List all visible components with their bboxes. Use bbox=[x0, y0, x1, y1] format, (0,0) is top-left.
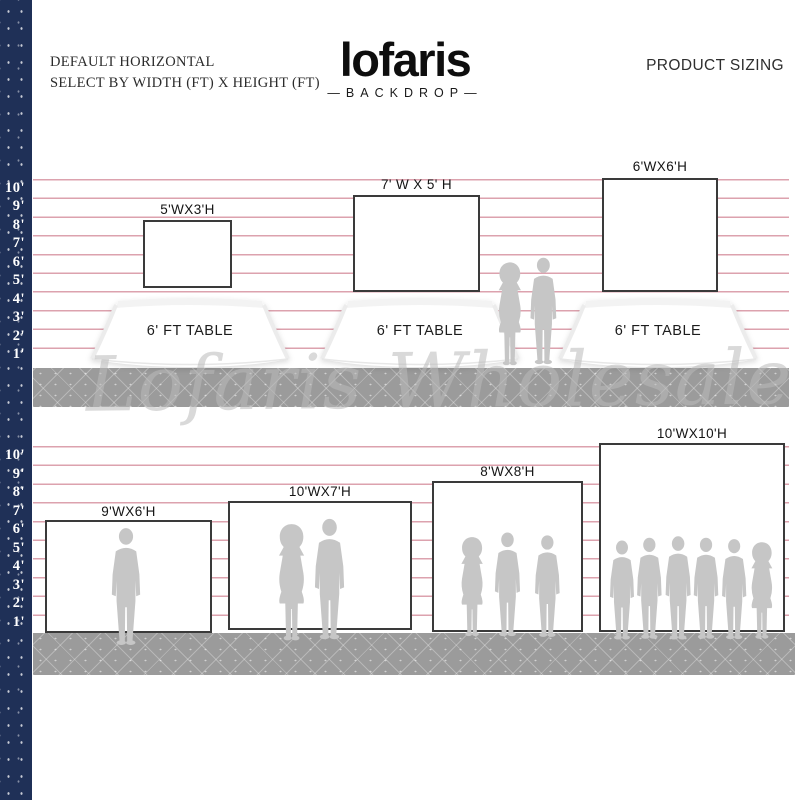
ruler-top-mark-6ft: 6' bbox=[0, 254, 25, 271]
banquet-table-1: 6' FT TABLE bbox=[90, 296, 290, 367]
left-ruler-strip bbox=[0, 0, 32, 800]
instruction-line2: SELECT BY WIDTH (FT) X HEIGHT (FT) bbox=[50, 73, 320, 94]
product-sizing-label: PRODUCT SIZING bbox=[646, 57, 784, 75]
brand-logo: lofaris —BACKDROP— bbox=[300, 36, 510, 100]
ruler-top-mark-3ft: 3' bbox=[0, 309, 25, 326]
backdrop-size-label-10x7: 10'WX7'H bbox=[228, 484, 412, 499]
ruler-bottom-mark-1ft: 1' bbox=[0, 614, 25, 631]
backdrop-panel-5x3 bbox=[143, 220, 232, 288]
ruler-bottom-mark-9ft: 9' bbox=[0, 466, 25, 483]
ruler-top-mark-4ft: 4' bbox=[0, 291, 25, 308]
ruler-bottom-mark-6ft: 6' bbox=[0, 521, 25, 538]
brand-tagline: —BACKDROP— bbox=[300, 86, 510, 100]
ruler-top-mark-9ft: 9' bbox=[0, 198, 25, 215]
man-silhouette-9x6 bbox=[101, 527, 151, 645]
couple-silhouette-10x7 bbox=[268, 514, 354, 642]
backdrop-size-label-5x3: 5'WX3'H bbox=[143, 202, 232, 217]
backdrop-size-label-8x8: 8'WX8'H bbox=[432, 464, 583, 479]
product-sizing-infographic: DEFAULT HORIZONTAL SELECT BY WIDTH (FT) … bbox=[0, 0, 800, 800]
ruler-top-mark-10ft: 10' bbox=[0, 180, 25, 197]
ruler-bottom-mark-8ft: 8' bbox=[0, 484, 25, 501]
sizing-instructions: DEFAULT HORIZONTAL SELECT BY WIDTH (FT) … bbox=[50, 52, 320, 94]
ruler-top-mark-5ft: 5' bbox=[0, 272, 25, 289]
table-label: 6' FT TABLE bbox=[90, 323, 290, 339]
banquet-table-3: 6' FT TABLE bbox=[558, 296, 758, 367]
backdrop-panel-6x6 bbox=[602, 178, 718, 292]
brand-name: lofaris bbox=[300, 36, 510, 83]
couple-silhouette-top bbox=[489, 253, 565, 367]
ruler-bottom-mark-5ft: 5' bbox=[0, 540, 25, 557]
backdrop-size-label-9x6: 9'WX6'H bbox=[45, 504, 212, 519]
ruler-top-mark-2ft: 2' bbox=[0, 328, 25, 345]
group-silhouette-10x10 bbox=[602, 524, 782, 650]
backdrop-size-label-6x6: 6'WX6'H bbox=[602, 159, 718, 174]
backdrop-size-label-7x5: 7' W X 5' H bbox=[353, 177, 480, 192]
ruler-top-mark-7ft: 7' bbox=[0, 235, 25, 252]
ruler-bottom-mark-4ft: 4' bbox=[0, 558, 25, 575]
ruler-bottom-mark-10ft: 10' bbox=[0, 447, 25, 464]
backdrop-size-label-10x10: 10'WX10'H bbox=[599, 426, 785, 441]
ruler-bottom-mark-3ft: 3' bbox=[0, 577, 25, 594]
floor-band-top bbox=[33, 368, 789, 407]
ruler-top-mark-1ft: 1' bbox=[0, 346, 25, 363]
ruler-bottom-mark-2ft: 2' bbox=[0, 595, 25, 612]
table-label: 6' FT TABLE bbox=[558, 323, 758, 339]
ruler-bottom-mark-7ft: 7' bbox=[0, 503, 25, 520]
backdrop-panel-7x5 bbox=[353, 195, 480, 292]
instruction-line1: DEFAULT HORIZONTAL bbox=[50, 52, 320, 73]
ruler-top-mark-8ft: 8' bbox=[0, 217, 25, 234]
trio-silhouette-8x8 bbox=[452, 519, 570, 646]
